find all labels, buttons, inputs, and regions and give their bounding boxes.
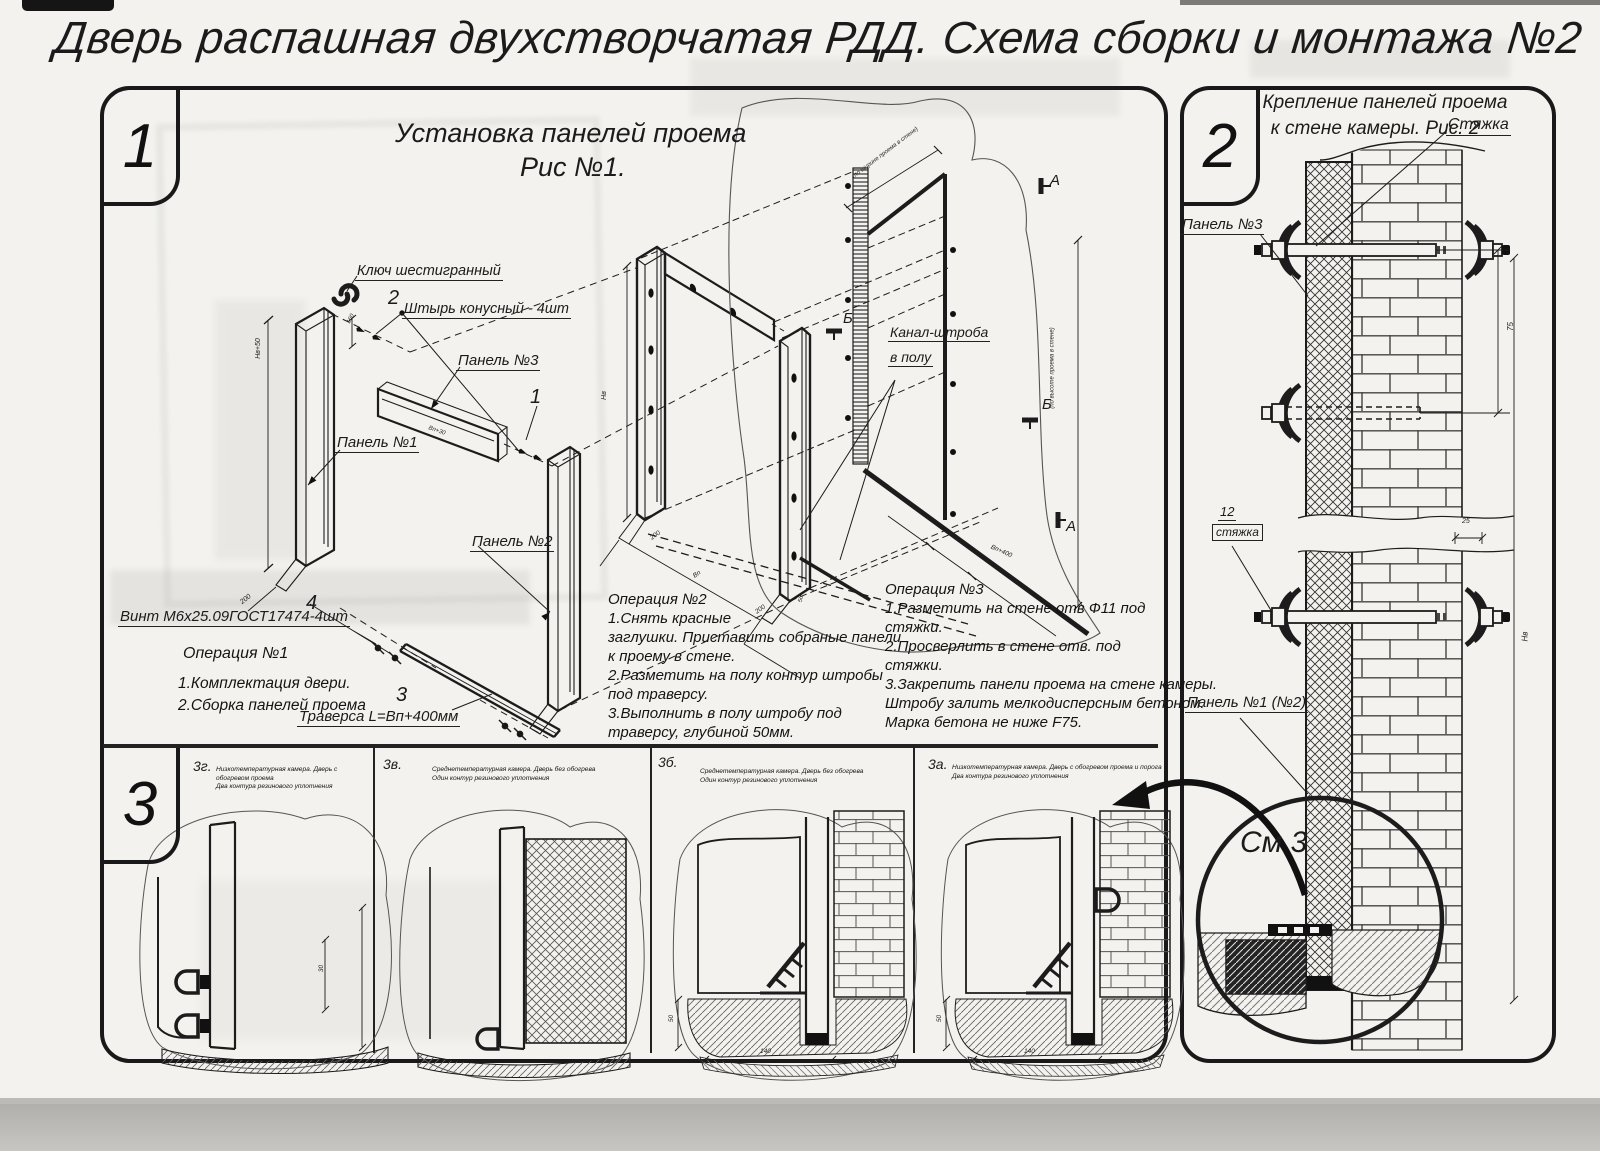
- section-mark-b-left: Б: [843, 310, 853, 327]
- pos1-label: 1: [530, 386, 541, 409]
- dim-wall-height-note: (по высоте проема в стене): [1050, 327, 1056, 408]
- op2-title: Операция №2: [608, 590, 901, 609]
- dim-panel1-height: Hв+50: [255, 338, 262, 359]
- hex-key-label: Ключ шестигранный: [355, 263, 503, 281]
- section-mark-a-bottom: А: [1066, 518, 1076, 535]
- table-background: [0, 1104, 1600, 1151]
- fig3v-label: 3в.: [383, 756, 402, 772]
- dim-140-fig3a: 140: [1024, 1048, 1035, 1055]
- fig1-title-line2: Рис №1.: [520, 152, 626, 183]
- section-mark-a-top: А: [1050, 172, 1060, 189]
- op1-title: Операция №1: [183, 645, 288, 663]
- op3-line: стяжки.: [885, 656, 1217, 675]
- op3-line: 2.Просверлить в стене отв. под: [885, 637, 1217, 656]
- panel1-label: Панель №1: [335, 434, 419, 453]
- pos2-label: 2: [388, 287, 399, 310]
- op3-line: стяжки.: [885, 618, 1217, 637]
- see-detail-label: См 3: [1240, 826, 1307, 860]
- fig2-title-line1: Крепление панелей проема: [1250, 92, 1520, 114]
- op2-line: 1.Снять красные: [608, 609, 901, 628]
- scan-artifact: [22, 0, 114, 11]
- op1-line1: 1.Комплектация двери.: [178, 675, 351, 693]
- screw-label: Винт М6х25.09ГОСТ17474-4шт: [118, 608, 350, 627]
- dim-frame-height: Hв: [601, 391, 608, 400]
- fig3a-label: 3а.: [928, 756, 947, 772]
- panel2-label: Панель №2: [470, 533, 554, 552]
- dim-75: 75: [1506, 322, 1515, 331]
- op2-line: 3.Выполнить в полу штробу под: [608, 704, 901, 723]
- pin-label: Штырь конусный - 4шт: [402, 301, 571, 319]
- sheet-title: Дверь распашная двухстворчатая РДД. Схем…: [52, 12, 1557, 64]
- op2-line: 2.Разметить на полу контур штробы: [608, 666, 901, 685]
- scan-artifact: [1180, 0, 1600, 5]
- dim-50-fig3b: 50: [668, 1015, 675, 1022]
- op2-block: Операция №2 1.Снять красные заглушки. Пр…: [608, 590, 901, 742]
- pos3-label: 3: [396, 684, 407, 707]
- op3-line: 1.Разметить на стене отв Ф11 под: [885, 599, 1217, 618]
- pos12-label: 12: [1218, 504, 1236, 521]
- fig3g-label: 3г.: [193, 758, 212, 774]
- channel-label-line2: в полу: [888, 349, 933, 367]
- op2-line: заглушки. Приставить собраные панели: [608, 628, 901, 647]
- caption-line: Низкотемпературная камера. Дверь с обогр…: [216, 766, 368, 783]
- op3-line: 3.Закрепить панели проема на стене камер…: [885, 675, 1217, 694]
- section3-badge: 3: [104, 748, 180, 864]
- fig3v-caption: Среднетемпературная камера. Дверь без об…: [432, 766, 612, 783]
- fig3b-caption: Среднетемпературная камера. Дверь без об…: [700, 768, 880, 785]
- tie-label-top: Стяжка: [1446, 116, 1511, 136]
- fig3-drawings: [100, 747, 1168, 1063]
- op3-line: Марка бетона не ниже F75.: [885, 713, 1217, 732]
- fig3b-label: 3б.: [658, 754, 678, 770]
- op2-line: траверсу, глубиной 50мм.: [608, 723, 901, 742]
- tie-label-mid: стяжка: [1212, 524, 1263, 541]
- op2-line: под траверсу.: [608, 685, 901, 704]
- caption-line: Один контур резинового уплотнения: [432, 775, 612, 784]
- fig1-title-line1: Установка панелей проема: [395, 118, 746, 149]
- op3-block: Операция №3 1.Разметить на стене отв Ф11…: [885, 580, 1217, 732]
- panel12-label: Панель №1 (№2): [1185, 694, 1308, 713]
- panel3-label-fig2: Панель №3: [1180, 216, 1264, 235]
- op3-title: Операция №3: [885, 580, 1217, 599]
- caption-line: Среднетемпературная камера. Дверь без об…: [432, 766, 612, 775]
- fig3g-caption: Низкотемпературная камера. Дверь с обогр…: [216, 766, 368, 792]
- section2-badge: 2: [1184, 90, 1260, 206]
- dim-140-fig3b: 140: [760, 1048, 771, 1055]
- dim-25: 25: [1462, 518, 1470, 525]
- channel-label-line1: Канал-штроба: [888, 324, 990, 342]
- dim-50-fig3a: 50: [936, 1015, 943, 1022]
- caption-line: Среднетемпературная камера. Дверь без об…: [700, 768, 880, 777]
- drawing-sheet: Дверь распашная двухстворчатая РДД. Схем…: [0, 0, 1600, 1104]
- dim-hv-fig2: Hв: [1520, 632, 1529, 642]
- op1-line2: 2.Сборка панелей проема: [178, 697, 366, 715]
- op3-line: Штробу залить мелкодисперсным бетоном.: [885, 694, 1217, 713]
- caption-line: Два контура резинового уплотнения: [216, 783, 368, 792]
- caption-line: Один контур резинового уплотнения: [700, 777, 880, 786]
- panel3-label: Панель №3: [456, 352, 540, 371]
- dim-30-fig3g: 30: [318, 965, 325, 972]
- section1-badge: 1: [104, 90, 180, 206]
- op2-line: к проему в стене.: [608, 647, 901, 666]
